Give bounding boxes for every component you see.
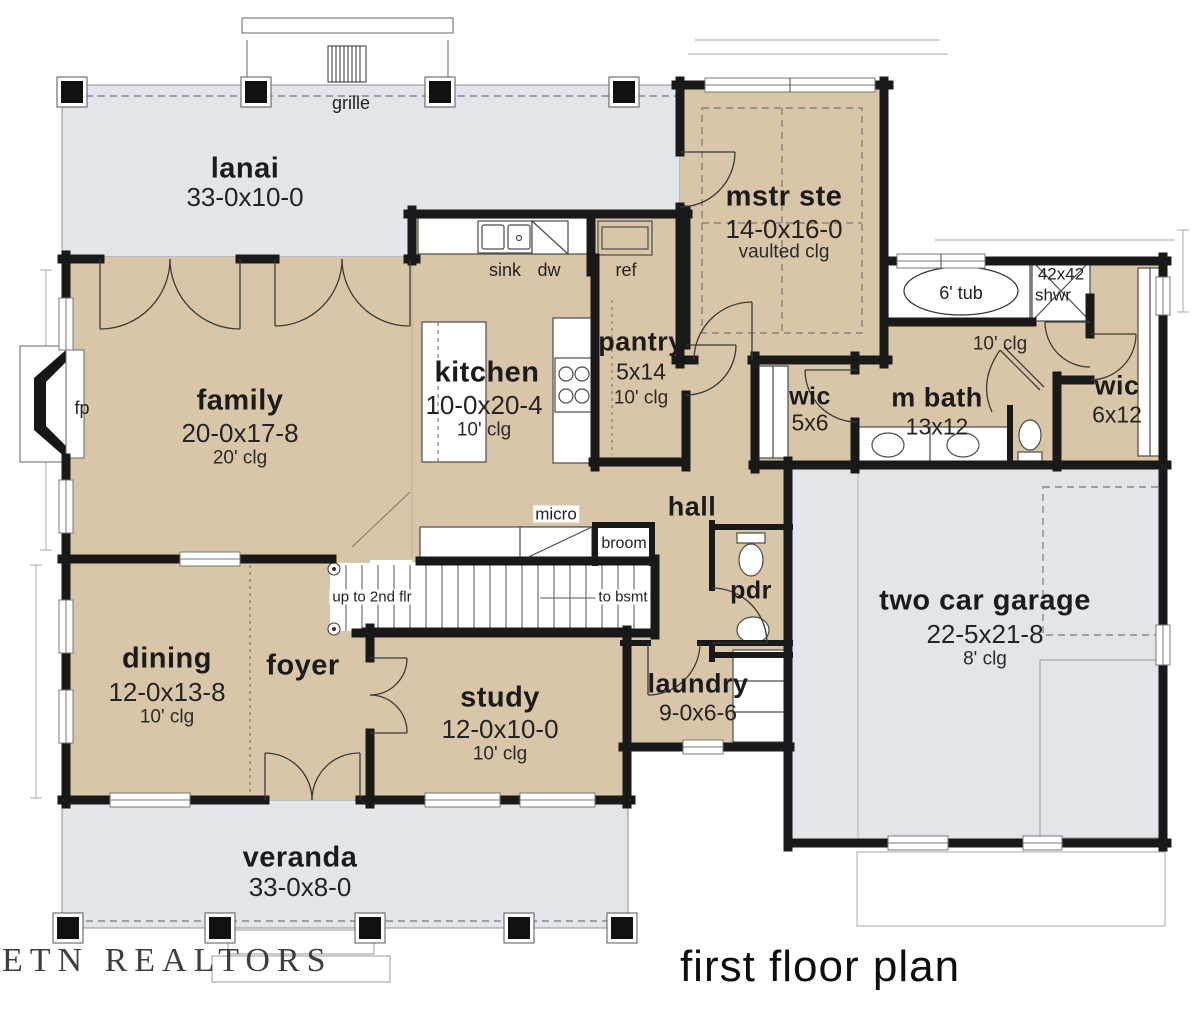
fireplace-label: fp xyxy=(74,399,89,417)
room-label-mstr: mstr ste xyxy=(726,183,843,212)
faucet xyxy=(517,236,522,241)
room-dim-wic-large: 6x12 xyxy=(1092,404,1142,427)
toilet xyxy=(1019,420,1041,450)
driveway-apron xyxy=(857,852,1165,926)
room-label-pdr: pdr xyxy=(730,579,772,604)
room-clg-dining: 10' clg xyxy=(140,708,194,727)
micro-label: micro xyxy=(533,506,579,523)
room-label-pantry: pantry xyxy=(598,329,684,356)
shower-size-label: 42x42 xyxy=(1038,266,1084,283)
room-label-family: family xyxy=(197,387,284,416)
room-dim-pantry: 5x14 xyxy=(616,361,666,384)
room-dim-veranda: 33-0x8-0 xyxy=(249,874,352,900)
room-dim-kitchen: 10-0x20-4 xyxy=(425,392,542,418)
refrigerator xyxy=(598,221,652,255)
room-clg-mbath: 10' clg xyxy=(973,335,1027,354)
range xyxy=(555,358,593,412)
room-label-dining: dining xyxy=(122,645,212,674)
room-clg-garage: 8' clg xyxy=(963,650,1007,669)
floor-plan-drawing xyxy=(0,0,1200,1016)
room-label-foyer: foyer xyxy=(266,652,339,681)
grille-label: grille xyxy=(332,94,370,112)
room-label-garage: two car garage xyxy=(879,587,1091,616)
toilet xyxy=(739,544,763,576)
shower-label: shwr xyxy=(1035,287,1071,304)
room-dim-study: 12-0x10-0 xyxy=(441,716,558,742)
stairs-up-label: up to 2nd flr xyxy=(329,590,414,605)
room-dim-laundry: 9-0x6-6 xyxy=(659,702,737,725)
room-dim-lanai: 33-0x10-0 xyxy=(186,184,303,210)
room-dim-wic-small: 5x6 xyxy=(791,412,828,435)
room-label-veranda: veranda xyxy=(243,844,358,873)
room-clg-family: 20' clg xyxy=(213,449,267,468)
page-title: first floor plan xyxy=(680,942,960,992)
room-dim-dining: 12-0x13-8 xyxy=(108,679,225,705)
tub-label: 6' tub xyxy=(939,284,982,302)
room-label-lanai: lanai xyxy=(211,155,280,184)
room-clg-pantry: 10' clg xyxy=(614,389,668,408)
ref-label: ref xyxy=(615,261,636,279)
broom-label: broom xyxy=(601,536,646,552)
room-clg-study: 10' clg xyxy=(473,745,527,764)
room-dim-garage: 22-5x21-8 xyxy=(926,621,1043,647)
room-label-laundry: laundry xyxy=(647,671,748,698)
room-clg-kitchen: 10' clg xyxy=(457,421,511,440)
room-label-hall: hall xyxy=(668,494,717,521)
sink-label: sink xyxy=(489,261,521,279)
room-clg-mstr: vaulted clg xyxy=(739,243,830,262)
room-label-study: study xyxy=(460,684,540,713)
room-dim-family: 20-0x17-8 xyxy=(181,420,298,446)
pdr-sink xyxy=(737,617,769,643)
watermark: ETN REALTORS xyxy=(2,942,333,980)
room-label-mbath: m bath xyxy=(891,385,983,412)
room-label-wic-large: wic xyxy=(1094,373,1139,400)
room-dim-mstr: 14-0x16-0 xyxy=(725,216,842,242)
dw-label: dw xyxy=(537,261,560,279)
grille-frame xyxy=(242,18,453,33)
floor-plan: lanai 33-0x10-0 grille mstr ste 14-0x16-… xyxy=(0,0,1200,1016)
room-label-kitchen: kitchen xyxy=(434,359,539,388)
room-dim-mbath: 13x12 xyxy=(906,416,969,439)
room-label-wic-small: wic xyxy=(789,385,831,410)
stairs-down-label: to bsmt xyxy=(595,590,650,605)
